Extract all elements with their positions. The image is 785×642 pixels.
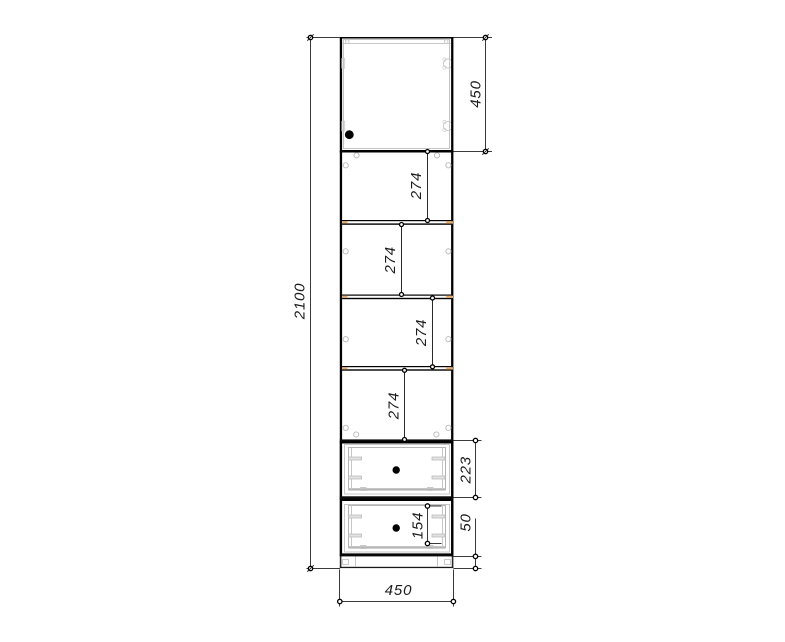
svg-text:274: 274 — [413, 319, 430, 347]
svg-text:50: 50 — [458, 513, 475, 531]
svg-text:154: 154 — [410, 512, 427, 539]
svg-text:274: 274 — [382, 246, 399, 274]
svg-text:450: 450 — [468, 80, 485, 107]
svg-text:450: 450 — [385, 582, 412, 599]
svg-text:274: 274 — [408, 172, 425, 200]
svg-text:2100: 2100 — [292, 283, 309, 321]
svg-text:274: 274 — [386, 392, 403, 420]
svg-text:223: 223 — [458, 456, 475, 484]
